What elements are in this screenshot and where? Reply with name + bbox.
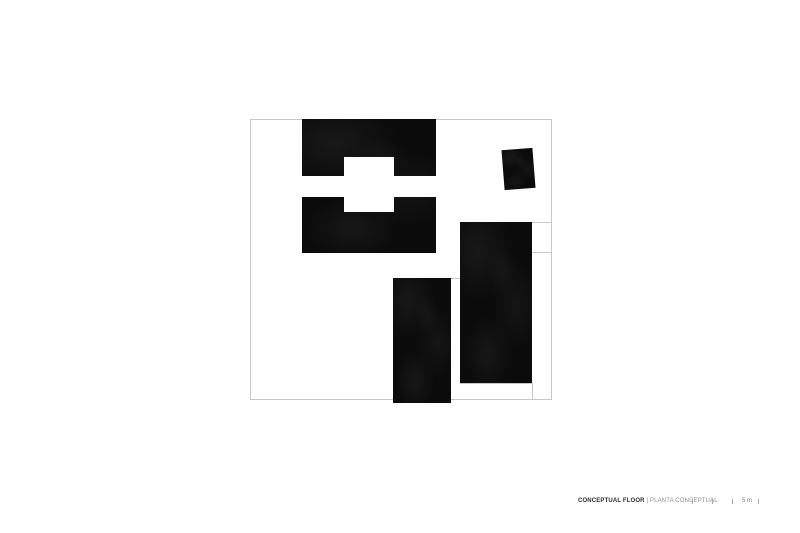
right-edge-drop-line	[532, 383, 533, 400]
middle-connector-line	[451, 278, 460, 279]
drawing-title-secondary: PLANTA CONCEPTUAL	[650, 498, 718, 504]
scale-tick	[692, 499, 693, 504]
scale-tick	[732, 499, 733, 504]
cross-square-void	[344, 157, 394, 213]
lower-middle-block	[393, 278, 451, 403]
drawing-title-separator: |	[646, 498, 648, 504]
drawing-title: CONCEPTUAL FLOOR | PLANTA CONCEPTUAL	[578, 498, 718, 505]
scale-label: 5 m	[742, 498, 752, 505]
right-bay-line-upper	[532, 222, 553, 223]
scale-tick	[758, 499, 759, 504]
drawing-title-primary: CONCEPTUAL FLOOR	[578, 498, 645, 504]
tall-block-base-line	[460, 383, 533, 384]
right-bay-line-lower	[532, 252, 553, 253]
tall-right-block	[460, 222, 532, 383]
drawing-sheet: CONCEPTUAL FLOOR | PLANTA CONCEPTUAL 5 m	[0, 0, 800, 533]
small-rotated-block	[501, 147, 535, 189]
scale-tick	[712, 499, 713, 504]
